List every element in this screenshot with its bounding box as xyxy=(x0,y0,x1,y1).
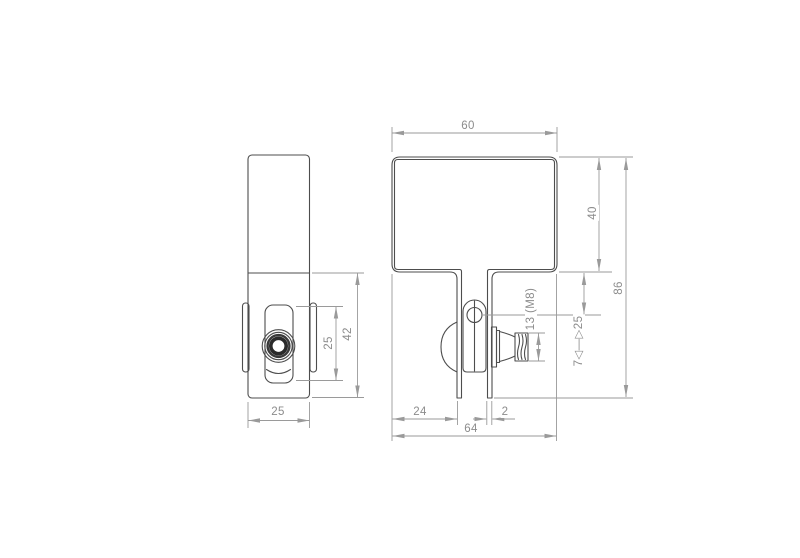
knob-cone-bottom xyxy=(500,356,516,362)
technical-drawing-page: 60 40 86 13 (M8) 7◁—▷25 24 2 64 25 42 25 xyxy=(0,0,800,558)
side-view xyxy=(243,155,317,398)
dim-label-side-width: 25 xyxy=(270,406,286,418)
dim-label-overall-height: 86 xyxy=(613,280,625,296)
dome-pad xyxy=(441,322,457,372)
knob-cone-top xyxy=(500,332,516,338)
dim-label-lower-height: 42 xyxy=(342,326,354,342)
dim-label-box-height: 40 xyxy=(587,205,599,221)
side-body-outline xyxy=(248,155,310,398)
side-knob-skirt-arc xyxy=(267,370,291,374)
knob-circle-rim xyxy=(265,332,292,359)
ext-right-side xyxy=(483,157,633,398)
drawing-canvas xyxy=(0,0,800,558)
knob-neck xyxy=(497,331,500,363)
dim-label-leg-offset: 24 xyxy=(412,406,428,418)
ext-knob xyxy=(529,333,545,361)
ext-lower-height xyxy=(312,273,364,398)
knurl-line-3 xyxy=(525,335,527,360)
dimension-lines xyxy=(248,127,633,441)
knurl-line-1 xyxy=(518,335,520,360)
knob-circle-socket xyxy=(271,338,286,353)
dim-label-top-width: 60 xyxy=(460,120,476,132)
side-flange-right xyxy=(310,303,317,372)
knurl-line-2 xyxy=(521,335,523,360)
front-view xyxy=(392,157,557,398)
dim-label-knob: 13 (M8) xyxy=(525,287,537,331)
dim-label-thickness: 2 xyxy=(501,406,510,418)
dim-label-overall-width: 64 xyxy=(463,423,479,435)
ext-thickness xyxy=(487,401,492,425)
dim-label-plate-height: 25 xyxy=(323,335,335,351)
dim-label-clamp-range: 7◁—▷25 xyxy=(573,315,585,368)
